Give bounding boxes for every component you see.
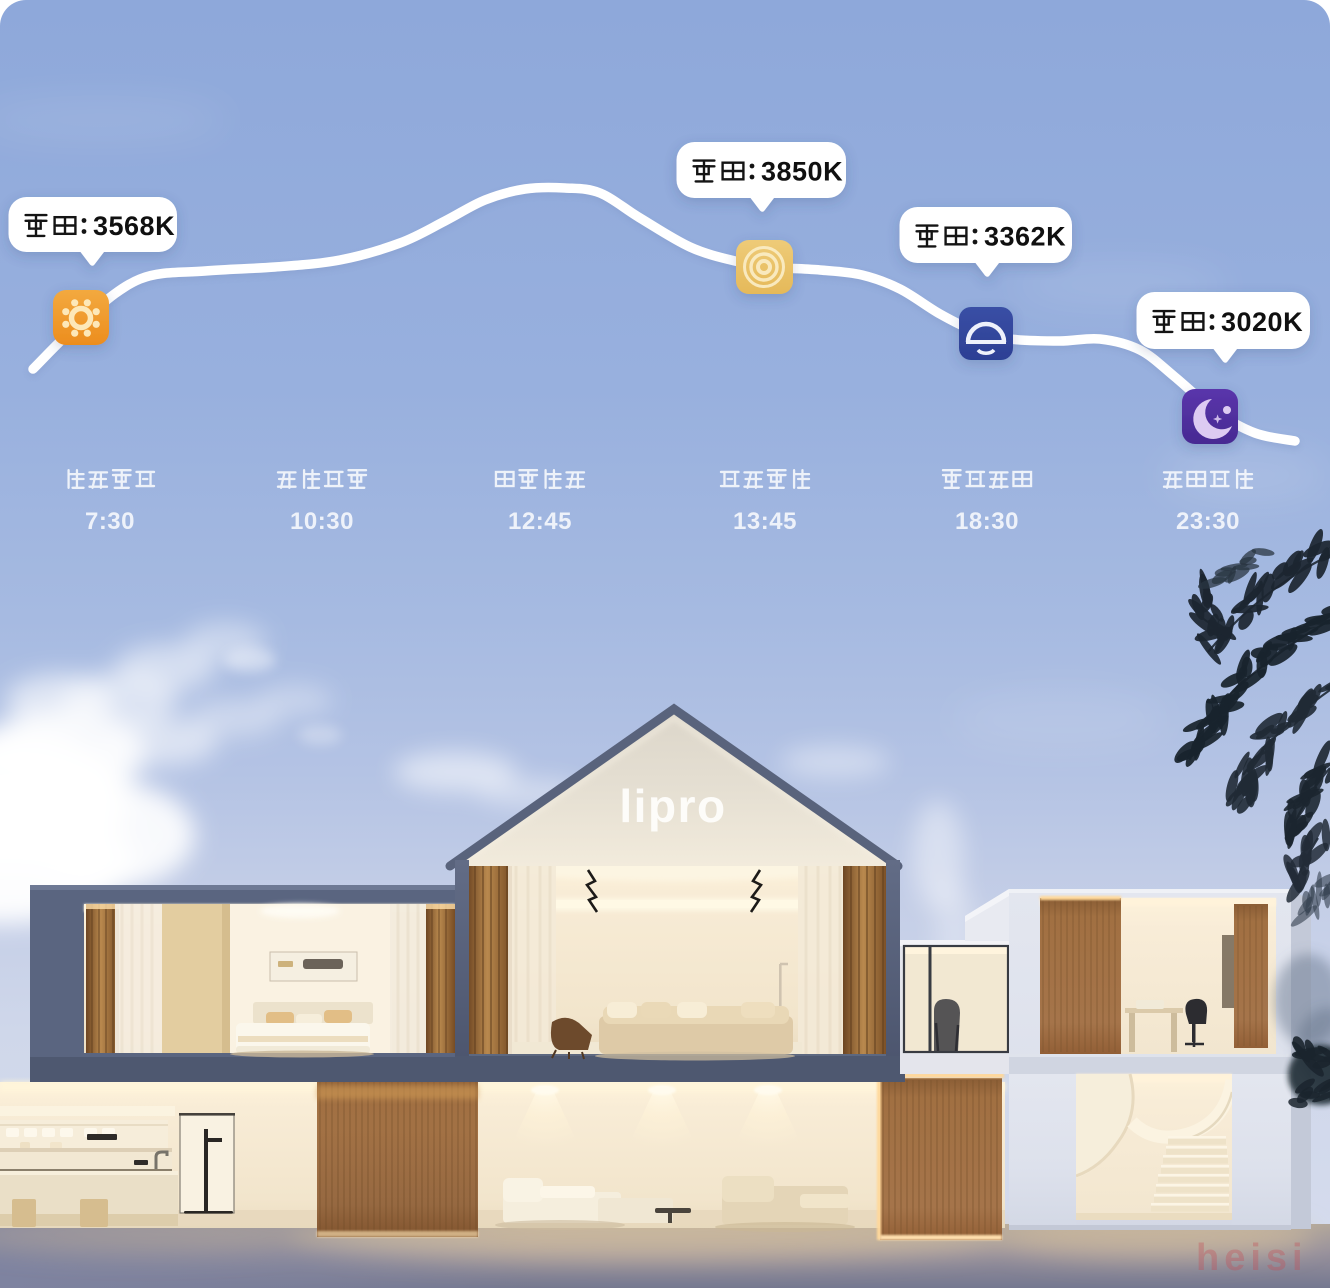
svg-text:23:30: 23:30 [1176,508,1240,535]
svg-text:3362K: 3362K [984,222,1066,252]
svg-text:heisi: heisi [1196,1237,1308,1279]
svg-text:13:45: 13:45 [733,508,797,535]
svg-text:12:45: 12:45 [508,508,572,535]
svg-text:lipro: lipro [619,780,726,832]
svg-text:7:30: 7:30 [85,508,135,535]
svg-text:3020K: 3020K [1221,307,1303,337]
svg-text:18:30: 18:30 [955,508,1019,535]
svg-text:3850K: 3850K [761,157,843,187]
svg-text:10:30: 10:30 [290,508,354,535]
svg-text:3568K: 3568K [93,211,175,241]
